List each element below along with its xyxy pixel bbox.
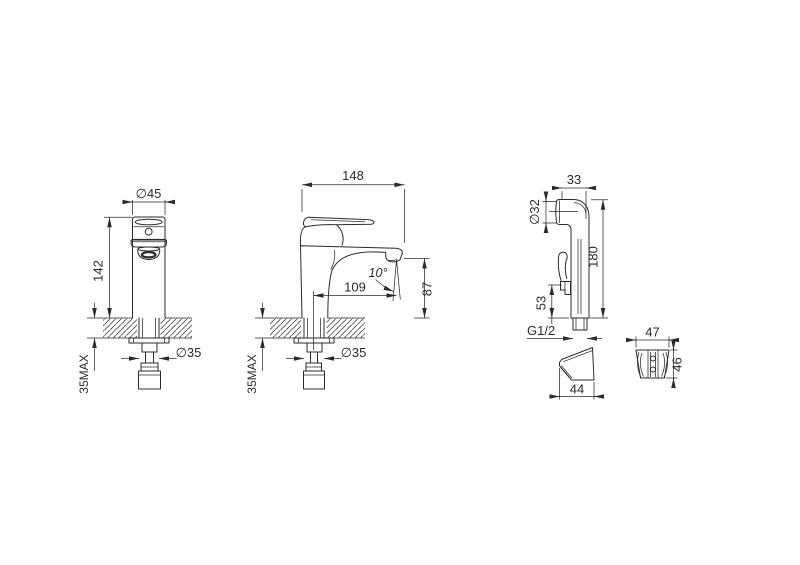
mounting-nut (307, 343, 322, 352)
dim-text-front-deck-max: 35MAX (77, 354, 91, 393)
dim-sprayer-head-diameter: ∅32 (527, 196, 556, 229)
sprayer-head (556, 200, 589, 319)
bracket-screw-hole-top (651, 356, 656, 361)
dim-side-hole-diameter: ∅35 (286, 345, 366, 360)
dim-front-deck-max: 35MAX (77, 303, 103, 394)
dim-text-side-deck-max: 35MAX (245, 354, 259, 393)
bracket-side-view: 44 (552, 348, 603, 400)
dim-text-sprayer-height: 180 (586, 246, 601, 268)
dim-text-front-height: 142 (91, 260, 106, 282)
aerator-outlet (142, 252, 156, 257)
dim-text-side-reach: 109 (344, 280, 366, 295)
dim-bracket-width: 47 (630, 325, 676, 348)
bracket-side-outline (560, 348, 595, 381)
counter-side (270, 318, 365, 338)
dim-side-reach: 109 (314, 280, 397, 351)
dim-bracket-depth: 44 (552, 368, 603, 400)
handle-top-front (135, 219, 162, 225)
hand-shower-body (549, 200, 589, 331)
dim-side-width: 148 (302, 168, 405, 243)
dim-text-side-angle: 10° (369, 266, 388, 280)
hose-connector-lower (304, 371, 325, 389)
dim-sprayer-head-width: 33 (556, 172, 593, 219)
dim-side-deck-max: 35MAX (245, 303, 270, 394)
handle-pin (145, 228, 152, 235)
dim-text-side-hole-diameter: ∅35 (341, 345, 367, 360)
hose-connector-lower (139, 371, 161, 389)
bracket-front-view: 47 46 (630, 325, 685, 384)
dim-text-bracket-depth: 44 (570, 382, 584, 397)
mounting-nut (142, 343, 157, 352)
faucet-front-view: ∅45 142 35MAX ∅35 (77, 186, 201, 394)
faucet-front-body (131, 217, 167, 318)
dim-side-angle: 10° (369, 260, 401, 302)
dim-text-side-spout-height: 87 (420, 282, 435, 296)
dim-text-sprayer-head-diameter: ∅32 (527, 199, 542, 225)
dim-text-side-width: 148 (342, 168, 364, 183)
dim-text-sprayer-lever-height: 53 (534, 296, 549, 310)
dim-text-bracket-width: 47 (645, 325, 659, 340)
dim-text-bracket-height: 46 (670, 357, 685, 371)
faucet-technical-drawing: ∅45 142 35MAX ∅35 (0, 0, 800, 565)
hand-shower-view: 33 ∅32 180 53 G1/2 (527, 172, 608, 339)
dim-text-sprayer-head-width: 33 (567, 172, 581, 187)
dim-sprayer-lever-height: 53 (534, 285, 570, 324)
dim-text-front-hole-diameter: ∅35 (176, 345, 202, 360)
bracket-screw-hole-bottom (651, 367, 656, 372)
mounting-washer (129, 338, 169, 343)
dim-sprayer-thread: G1/2 (527, 323, 602, 339)
sprayer-handle (557, 223, 590, 319)
dim-text-front-top-diameter: ∅45 (136, 186, 162, 201)
sprayer-trigger-lever (558, 252, 570, 294)
spout-collar-front (131, 240, 167, 247)
dim-front-top-diameter: ∅45 (124, 186, 173, 215)
dim-front-height: 142 (91, 217, 133, 318)
dim-side-spout-height: 87 (404, 259, 435, 319)
counter-front (103, 318, 192, 338)
dim-text-sprayer-thread: G1/2 (527, 323, 555, 338)
bracket-front-outline (636, 350, 669, 378)
aerator-ring (138, 247, 160, 251)
faucet-side-view: 148 10° 109 87 35MAX ∅35 (245, 168, 435, 394)
sprayer-thread-connector (573, 318, 587, 330)
mounting-washer (294, 338, 334, 343)
dim-front-hole-diameter: ∅35 (121, 345, 201, 360)
drawing-canvas: ∅45 142 35MAX ∅35 (0, 0, 800, 565)
